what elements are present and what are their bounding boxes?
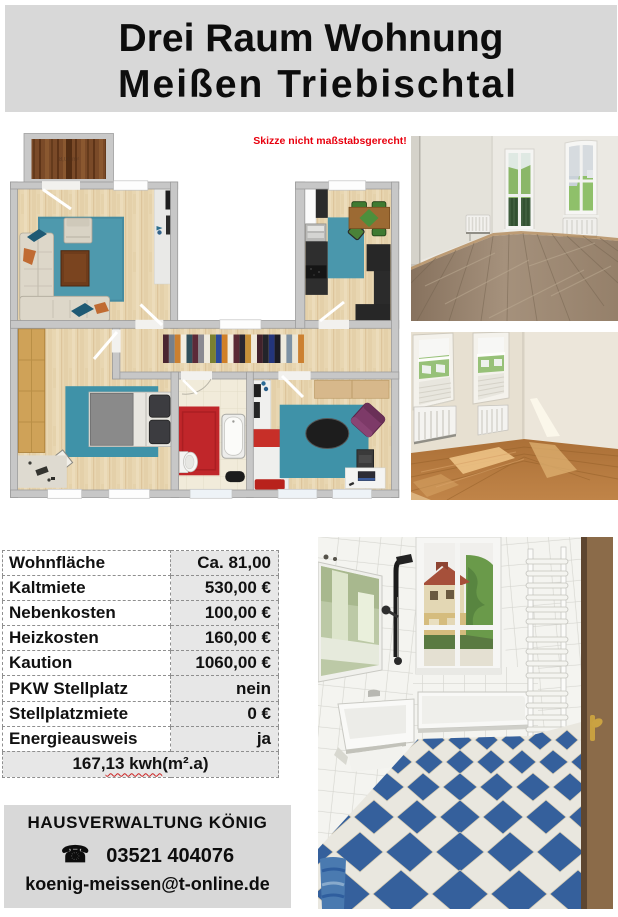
svg-text:8,00 m²: 8,00 m²	[59, 157, 79, 163]
